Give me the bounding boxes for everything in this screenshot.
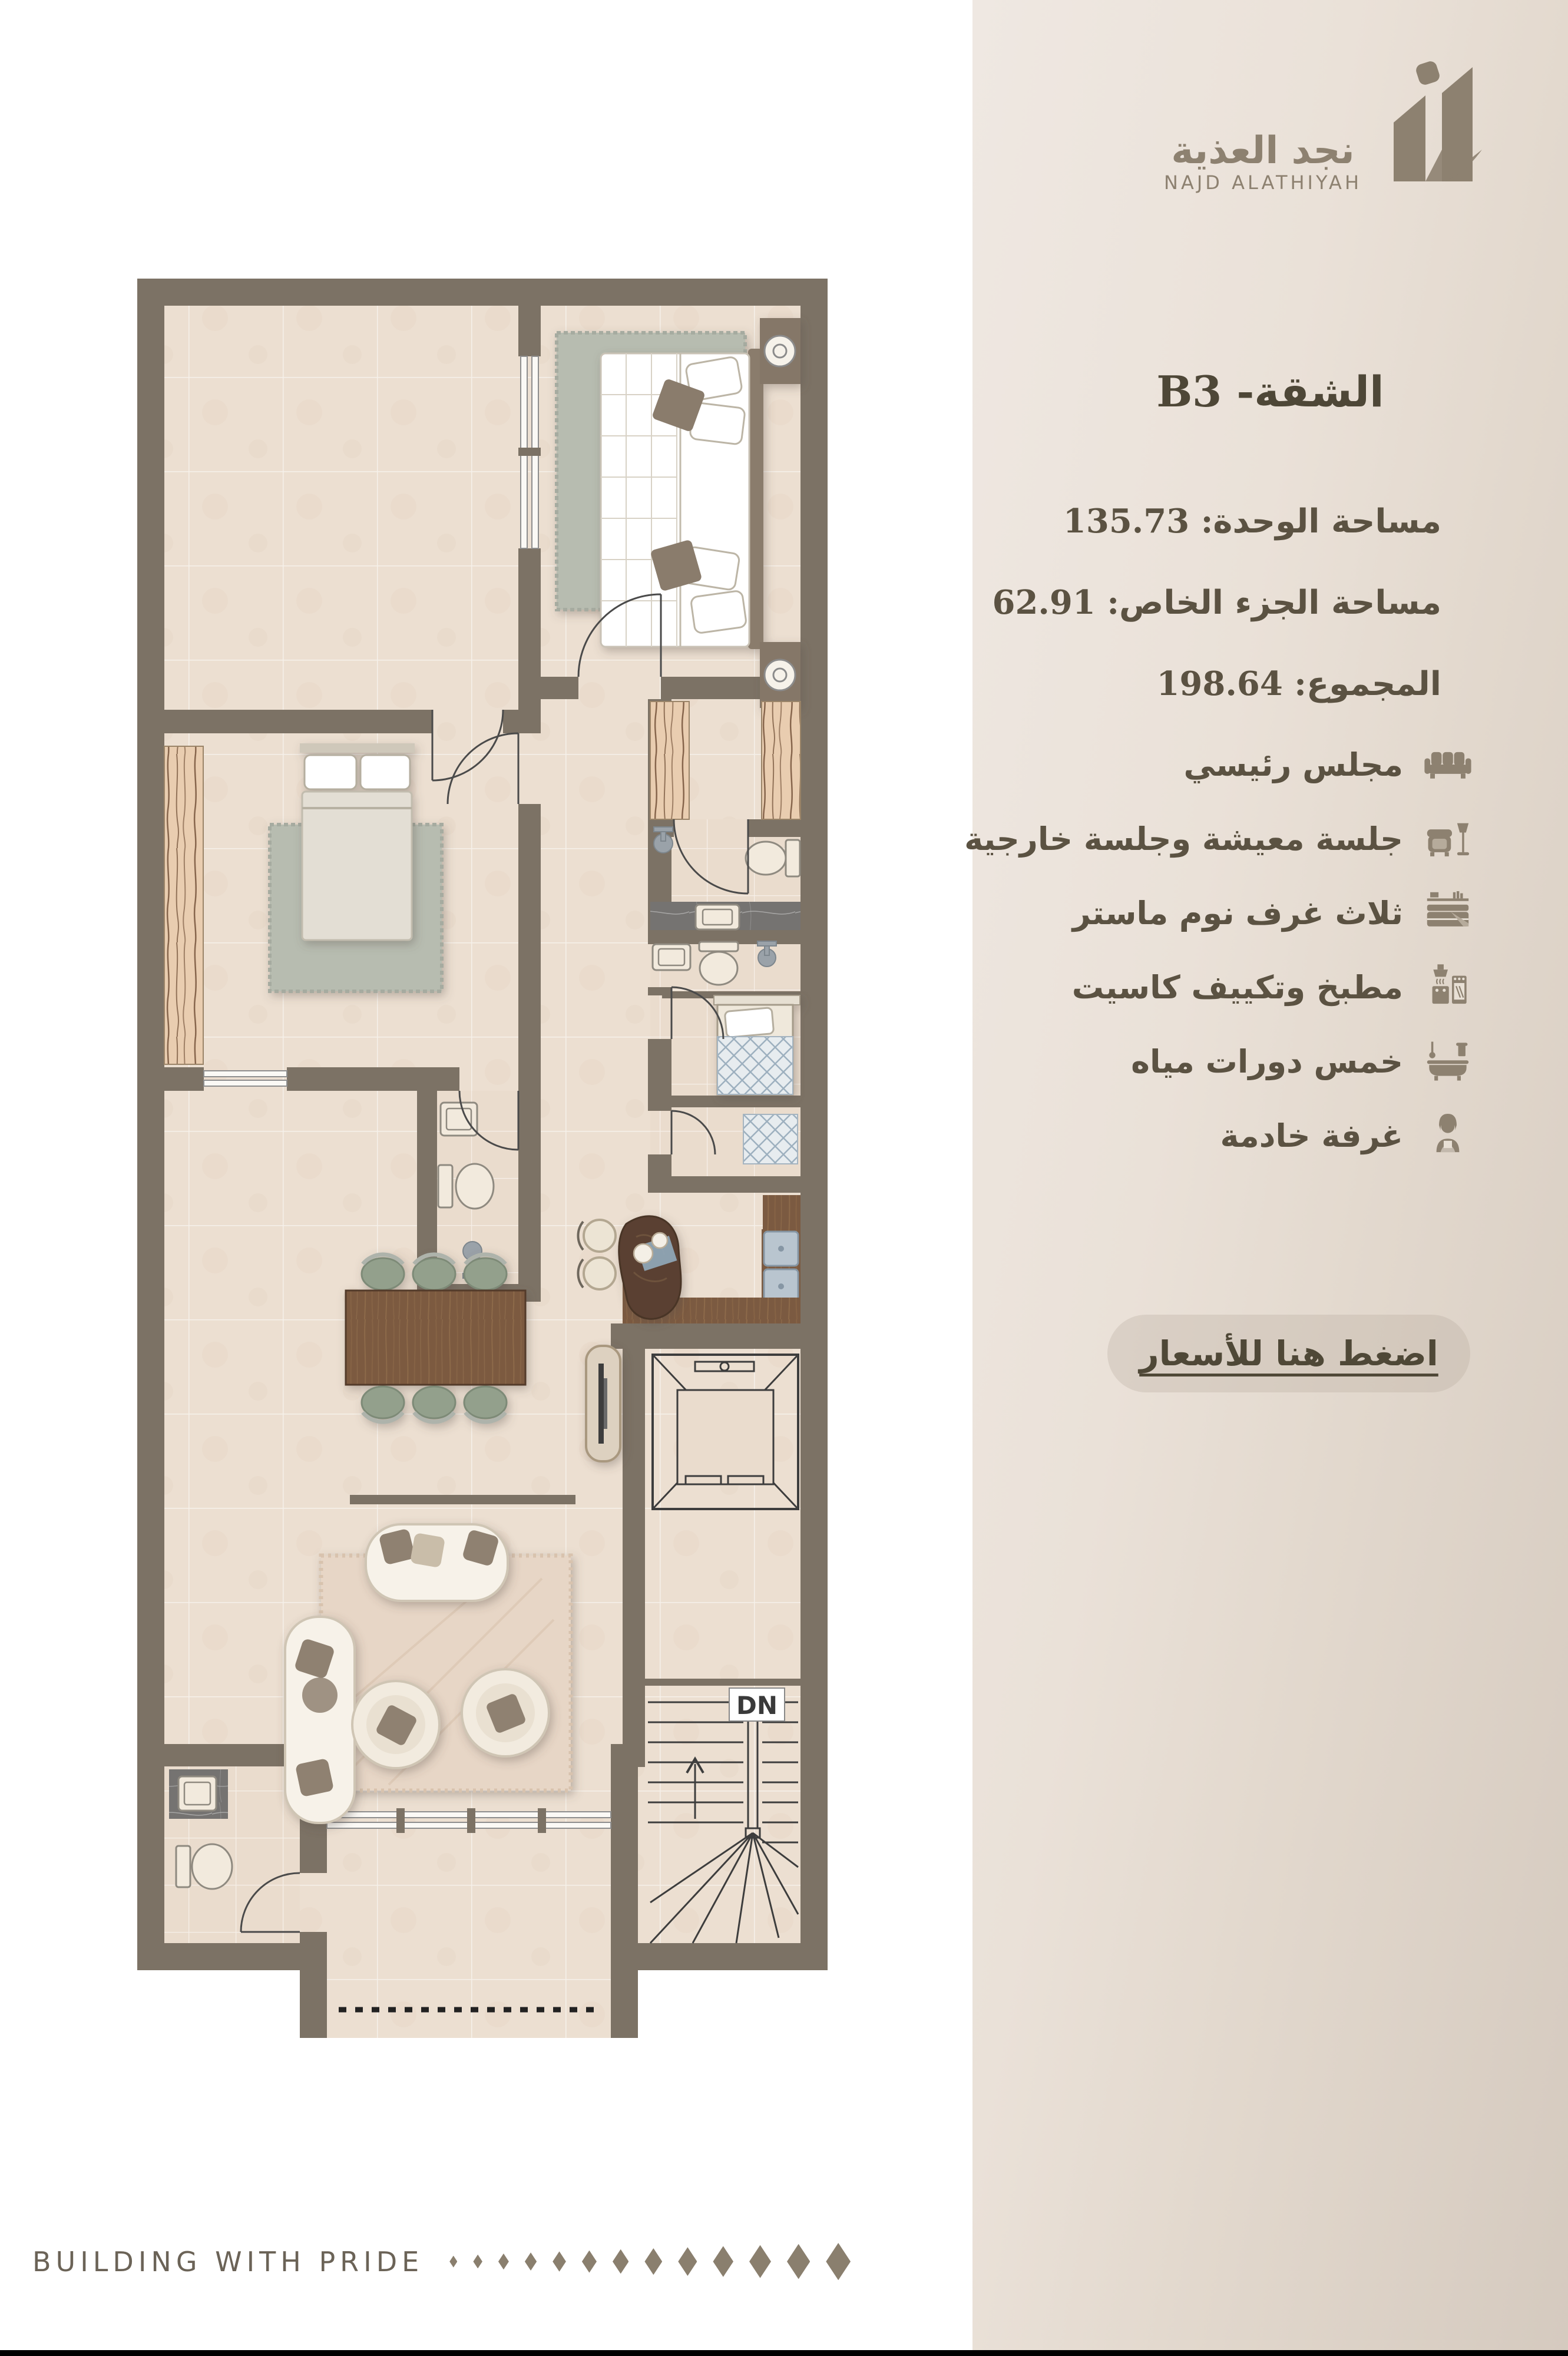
sofa-icon [1421, 737, 1475, 792]
logo-arabic: نجد العذية [1171, 132, 1354, 170]
tv-console [586, 1346, 620, 1461]
bed-icon [1421, 886, 1475, 940]
price-link-label[interactable]: اضغط هنا للأسعار [1139, 1333, 1438, 1374]
feature-bedrooms: ثلاث غرف نوم ماستر [964, 886, 1475, 940]
diamond-icon [749, 2245, 771, 2278]
footer-diamonds [449, 2243, 851, 2280]
diamond-icon [553, 2251, 566, 2271]
feature-bathrooms: خمس دورات مياه [964, 1034, 1475, 1088]
feature-maid-room: غرفة خادمة [964, 1108, 1475, 1163]
maid-bathroom [743, 1114, 798, 1164]
logo-english: NAJD ALATHIYAH [1164, 173, 1362, 192]
dining-set [346, 1255, 525, 1422]
feature-list: مجلس رئيسي جلسة معيشة وجلسة خارجية [964, 737, 1475, 1183]
feature-kitchen: مطبخ وتكييف كاسيت [964, 960, 1475, 1014]
price-link-button[interactable]: اضغط هنا للأسعار [1107, 1315, 1470, 1392]
brand-mark-icon [1383, 57, 1483, 192]
diamond-icon [613, 2249, 628, 2274]
info-panel: نجد العذية NAJD ALATHIYAH الشقة- B3 مساح… [972, 0, 1568, 2356]
bottom-edge-bar [0, 2350, 1568, 2356]
diamond-icon [498, 2254, 509, 2269]
diamond-icon [713, 2246, 733, 2276]
feature-living-seating: جلسة معيشة وجلسة خارجية [964, 812, 1475, 866]
feature-label: مجلس رئيسي [1183, 746, 1403, 783]
dining-table [346, 1290, 525, 1385]
spec-private-area: مساحة الجزء الخاص: 62.91 [992, 583, 1441, 626]
kitchen-icon [1421, 960, 1475, 1014]
armchair-lamp-icon [1421, 812, 1475, 866]
armchair [462, 1669, 549, 1756]
stairs-dn-label: DN [736, 1691, 778, 1720]
feature-majlis: مجلس رئيسي [964, 737, 1475, 792]
spec-total-area: المجموع: 198.64 [992, 664, 1441, 707]
maid-icon [1421, 1108, 1475, 1163]
diamond-icon [473, 2255, 482, 2269]
armchair [352, 1681, 439, 1768]
feature-label: ثلاث غرف نوم ماستر [1073, 895, 1403, 932]
unit-specs: مساحة الوحدة: 135.73 مساحة الجزء الخاص: … [992, 502, 1441, 746]
feature-label: خمس دورات مياه [1131, 1043, 1403, 1080]
feature-label: غرفة خادمة [1220, 1117, 1403, 1154]
spec-unit-area: مساحة الوحدة: 135.73 [992, 502, 1441, 544]
diamond-icon [678, 2247, 697, 2276]
unit-title: الشقة- B3 [972, 366, 1568, 416]
diamond-icon [826, 2243, 851, 2280]
brand-logo: نجد العذية NAJD ALATHIYAH [1164, 57, 1483, 192]
feature-label: جلسة معيشة وجلسة خارجية [964, 820, 1403, 858]
maid-room [714, 995, 800, 1094]
diamond-icon [644, 2248, 662, 2275]
diamond-icon [449, 2256, 457, 2268]
feature-label: مطبخ وتكييف كاسيت [1072, 969, 1403, 1006]
diamond-icon [787, 2244, 810, 2279]
footer: BUILDING WITH PRIDE [32, 2243, 851, 2280]
footer-tagline: BUILDING WITH PRIDE [32, 2246, 424, 2278]
diamond-icon [582, 2251, 597, 2273]
bathtub-icon [1421, 1034, 1475, 1088]
diamond-icon [525, 2252, 537, 2271]
